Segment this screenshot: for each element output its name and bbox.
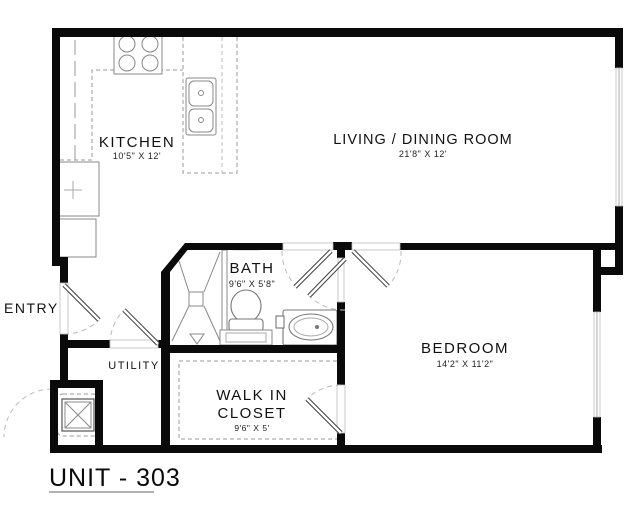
utility-door-arc <box>110 310 124 344</box>
wall-whcloset-top <box>50 380 103 388</box>
wall-hall-vertical <box>161 272 170 448</box>
wall-bottom <box>50 445 602 453</box>
wall-utility-pier <box>158 340 170 348</box>
opening-utility <box>110 340 158 348</box>
room-label-closet-line2: CLOSET <box>217 405 286 422</box>
wall-left-jog <box>52 257 68 266</box>
tub-drain <box>315 325 319 329</box>
room-label-living: LIVING / DINING ROOM <box>333 132 513 148</box>
wall-utility-top <box>68 340 110 348</box>
room-dims-closet: 9'6" X 5' <box>234 423 269 433</box>
wall-bath-bottom <box>170 345 345 353</box>
floor-plan-canvas: KITCHEN 10'5" X 12' LIVING / DINING ROOM… <box>0 0 644 514</box>
wall-bedroom-left-a <box>337 250 345 258</box>
wall-left-lower <box>60 334 68 381</box>
room-label-closet-line1: WALK IN <box>216 387 288 404</box>
shower-drain <box>189 292 203 306</box>
entry-door <box>64 285 99 334</box>
stove-icon <box>114 32 162 74</box>
shower-icon <box>172 250 227 345</box>
room-label-entry: ENTRY <box>4 300 59 316</box>
walls <box>50 28 623 453</box>
refrigerator-icon <box>58 162 99 216</box>
room-label-utility: UTILITY <box>108 360 159 372</box>
kitchen-sink-icon <box>186 78 216 135</box>
closet-door <box>307 385 341 433</box>
wall-bedroom-top <box>400 243 623 250</box>
wall-left-mid <box>60 266 68 283</box>
bath-door-arc <box>282 251 296 286</box>
wall-right-living-a <box>615 37 623 68</box>
wall-door-pier <box>333 242 352 250</box>
unit-title: UNIT - 303 <box>49 464 181 492</box>
bedroom-door <box>353 251 401 286</box>
bathtub-icon <box>276 310 337 345</box>
wall-top <box>52 28 623 37</box>
entry-door-arc <box>64 320 99 334</box>
vanity-icon <box>220 330 272 345</box>
exterior-closet-door-arc <box>4 389 52 437</box>
closet-door-arc <box>307 385 341 399</box>
toilet-icon <box>229 290 263 331</box>
wall-right-living-b <box>615 206 623 273</box>
wall-bedroom-left-c <box>337 433 345 445</box>
water-heater-icon <box>57 394 99 436</box>
utility-door <box>110 310 158 344</box>
room-dims-living: 21'8" X 12' <box>399 149 447 159</box>
wall-diagonal <box>161 243 193 272</box>
opening-bath <box>283 243 333 250</box>
opening-bedroom <box>352 243 400 250</box>
pantry-cabinet-icon <box>58 219 96 257</box>
room-label-bath: BATH <box>230 260 275 277</box>
room-dims-bath: 9'6" X 5'8" <box>229 279 275 289</box>
tub-faucet <box>276 316 284 328</box>
shower-head <box>190 334 204 344</box>
wall-bedroom-left-b <box>337 302 345 385</box>
wall-whcloset-right <box>95 388 103 445</box>
wall-bath-top <box>185 243 283 250</box>
wall-right-bedroom-a <box>593 250 601 312</box>
floor-plan: KITCHEN 10'5" X 12' LIVING / DINING ROOM… <box>0 0 644 514</box>
room-label-bedroom: BEDROOM <box>421 340 509 357</box>
opening-closet <box>337 385 345 433</box>
room-dims-bedroom: 14'2" X 11'2" <box>437 359 494 369</box>
wall-left-upper <box>52 28 60 257</box>
wall-right-bedroom-b <box>593 417 601 445</box>
room-dims-kitchen: 10'5" X 12' <box>113 151 161 161</box>
bedroom-door-arc <box>388 251 401 286</box>
room-label-kitchen: KITCHEN <box>99 134 175 151</box>
wall-left-bottom <box>50 388 58 448</box>
